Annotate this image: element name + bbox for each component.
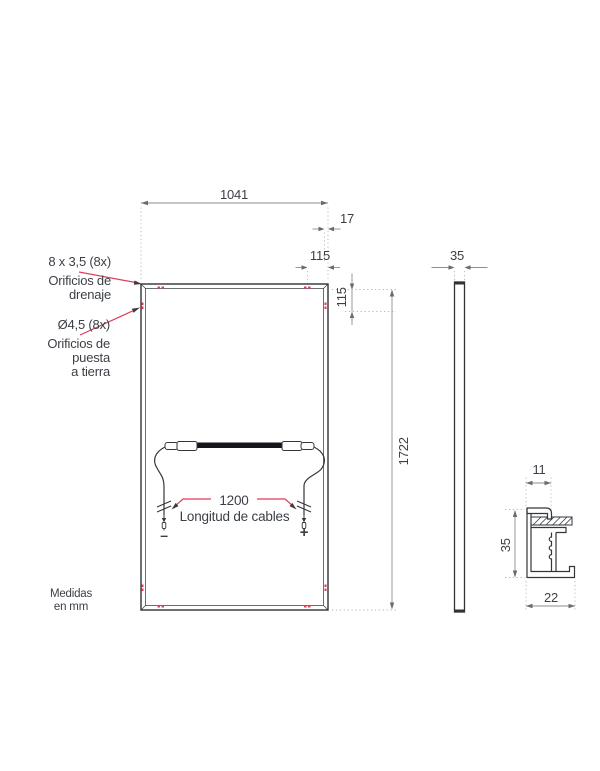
cable-length-caption: Longitud de cables xyxy=(174,510,295,525)
dim-hole-offset-h-label: 115 xyxy=(300,249,340,264)
ground-holes-size: Ø4,5 (8x) xyxy=(10,318,110,332)
negative-terminal-sign: – xyxy=(154,528,174,543)
dim-profile-bottom-width-label: 22 xyxy=(536,591,566,606)
panel-side-view xyxy=(455,282,465,612)
ground-holes-text-1: Orificios de xyxy=(10,337,110,351)
dim-profile-top-width-label: 11 xyxy=(524,463,554,478)
ground-holes-text-2: puesta xyxy=(10,351,110,365)
units-note: Medidas en mm xyxy=(31,588,111,614)
dim-cable-length-label: 1200 xyxy=(204,494,264,509)
drain-holes-text-2: drenaje xyxy=(10,288,111,302)
drain-holes-text-1: Orificios de xyxy=(10,274,111,288)
diagram-linework xyxy=(0,0,600,771)
dim-profile-height-label: 35 xyxy=(499,520,514,570)
positive-terminal-sign: + xyxy=(294,526,314,541)
dim-edge-offset-label: 17 xyxy=(332,212,362,227)
drain-holes-callout: 8 x 3,5 (8x) Orificios de drenaje xyxy=(10,255,111,302)
dim-height-label: 1722 xyxy=(397,426,412,476)
units-note-line-1: Medidas xyxy=(31,588,111,601)
ground-holes-callout: Ø4,5 (8x) Orificios de puesta a tierra xyxy=(10,318,110,379)
dim-hole-offset-v-label: 115 xyxy=(335,272,350,322)
units-note-line-2: en mm xyxy=(31,601,111,614)
dim-width-label: 1041 xyxy=(204,188,264,203)
ground-holes-text-3: a tierra xyxy=(10,365,110,379)
frame-profile-detail xyxy=(527,508,575,578)
dimension-diagram: 1041 17 115 35 115 1722 8 x 3,5 (8x) Ori… xyxy=(0,0,600,771)
drain-holes-size: 8 x 3,5 (8x) xyxy=(10,255,111,269)
dim-side-thickness-label: 35 xyxy=(442,249,472,264)
